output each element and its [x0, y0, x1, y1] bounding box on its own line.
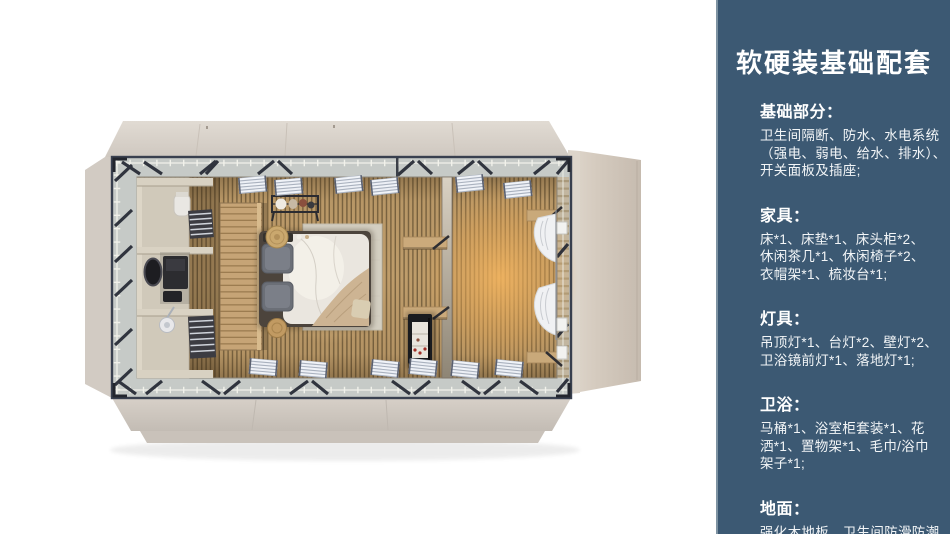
section-heading: 家具： — [760, 202, 938, 226]
section-line: 吊顶灯*1、台灯*2、壁灯*2、 — [760, 334, 938, 352]
bottom-wall-flap — [112, 398, 571, 431]
section-line: 强化木地板、卫生间防滑防潮 — [760, 524, 938, 534]
page-title: 软硬装基础配套 — [718, 0, 950, 78]
glass-divider — [442, 177, 452, 378]
section-line: 架子*1; — [760, 455, 938, 473]
section-lighting: 灯具： 吊顶灯*1、台灯*2、壁灯*2、 卫浴镜前灯*1、落地灯*1; — [760, 305, 938, 369]
section-line: 衣帽架*1、梳妆台*1; — [760, 266, 938, 284]
wall-lamp — [557, 318, 567, 331]
spec-sections: 基础部分： 卫生间隔断、防水、水电系统 （强电、弱电、给水、排水）、 开关面板及… — [760, 98, 938, 534]
slide: 软硬装基础配套 基础部分： 卫生间隔断、防水、水电系统 （强电、弱电、给水、排水… — [0, 0, 950, 534]
section-line: 卫生间隔断、防水、水电系统 — [760, 127, 938, 145]
info-panel: 软硬装基础配套 基础部分： 卫生间隔断、防水、水电系统 （强电、弱电、给水、排水… — [716, 0, 950, 534]
left-wall-flap — [85, 157, 112, 398]
section-heading: 地面： — [760, 495, 938, 519]
toilet — [174, 194, 190, 216]
section-line: （强电、弱电、给水、排水）、 — [760, 145, 938, 163]
right-wall-panel — [580, 151, 641, 392]
section-heading: 灯具： — [760, 305, 938, 329]
section-flooring: 地面： 强化木地板、卫生间防滑防潮 石塑板; — [760, 495, 938, 534]
section-basics: 基础部分： 卫生间隔断、防水、水电系统 （强电、弱电、给水、排水）、 开关面板及… — [760, 98, 938, 180]
section-line: 床*1、床垫*1、床头柜*2、 — [760, 231, 938, 249]
section-heading: 卫浴： — [760, 391, 938, 415]
section-furniture: 家具： 床*1、床垫*1、床头柜*2、 休闲茶几*1、休闲椅子*2、 衣帽架*1… — [760, 202, 938, 284]
towel-radiator — [188, 315, 216, 358]
section-line: 卫浴镜前灯*1、落地灯*1; — [760, 352, 938, 370]
section-line: 洒*1、置物架*1、毛巾/浴巾 — [760, 438, 938, 456]
basket — [268, 319, 287, 338]
section-line: 休闲茶几*1、休闲椅子*2、 — [760, 248, 938, 266]
bottom-wall-lip — [140, 431, 545, 443]
wall-lamp — [557, 346, 567, 359]
room-render — [0, 0, 716, 534]
vanity-mirror — [145, 259, 162, 286]
towel-radiator — [188, 209, 214, 239]
floor-cushion — [351, 299, 371, 319]
bathroom-partition — [137, 309, 213, 316]
straw-hat — [266, 226, 288, 248]
vanity-stool — [163, 291, 182, 302]
section-line: 马桶*1、浴室柜套装*1、花 — [760, 420, 938, 438]
top-wall-flap — [105, 121, 570, 157]
room-render-canvas — [0, 0, 716, 534]
wall-lamp — [557, 222, 567, 234]
section-line: 开关面板及插座; — [760, 162, 938, 180]
section-heading: 基础部分： — [760, 98, 938, 122]
section-bathroom: 卫浴： 马桶*1、浴室柜套装*1、花 洒*1、置物架*1、毛巾/浴巾 架子*1; — [760, 391, 938, 473]
